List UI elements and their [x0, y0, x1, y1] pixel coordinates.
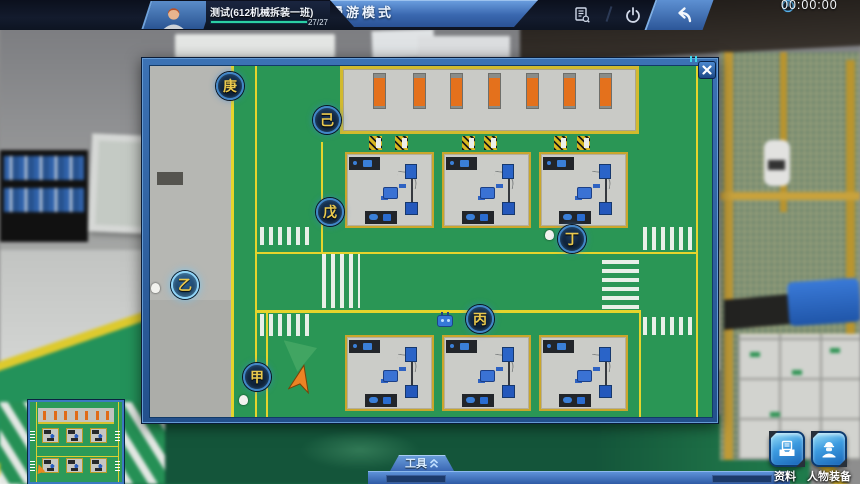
bottom-toolbar [368, 471, 790, 484]
worker-icon [819, 439, 839, 459]
power-button[interactable] [624, 6, 644, 24]
player-info-plate: 测试(612机械拆装一班) 27/27 [206, 1, 330, 29]
report-button[interactable] [573, 6, 593, 24]
map-marker-layer: 庚己戊丁乙丙甲 [150, 66, 712, 417]
map-marker-甲[interactable]: 甲 [243, 363, 271, 391]
materials-label: 资料 [774, 468, 796, 484]
app-screen: 测试(612机械拆装一班) 27/27 漫游模式 0 [0, 0, 860, 484]
documents-icon [777, 439, 797, 459]
npc-marker [545, 230, 554, 240]
power-icon [624, 6, 642, 24]
avatar-icon [162, 3, 186, 29]
back-button[interactable] [645, 0, 714, 30]
minimap-cell [42, 428, 59, 443]
factory-map-panel: 庚己戊丁乙丙甲 [141, 57, 719, 424]
progress-bar [210, 20, 308, 24]
report-icon [573, 6, 591, 24]
work-table [175, 34, 335, 58]
tools-label: 工具 [405, 455, 427, 471]
binder-row [4, 188, 84, 212]
materials-button[interactable] [769, 431, 805, 467]
map-marker-庚[interactable]: 庚 [216, 72, 244, 100]
double-chevron-up-icon [429, 458, 439, 469]
progress-fill [211, 21, 307, 23]
shelf-tag [792, 370, 802, 375]
cage-rail [720, 192, 860, 200]
map-marker-丙[interactable]: 丙 [466, 305, 494, 333]
minimap-cell [66, 458, 83, 473]
cage-post [724, 52, 733, 460]
map-marker-戊[interactable]: 戊 [316, 198, 344, 226]
panel-tick [690, 56, 692, 62]
close-button[interactable] [698, 61, 716, 79]
minimap-cell [90, 458, 107, 473]
binder-shelf [0, 150, 88, 242]
panel-tick [695, 56, 697, 62]
player-position-arrow [288, 364, 318, 398]
tools-tab[interactable]: 工具 [390, 455, 454, 471]
work-table [418, 36, 510, 58]
blue-machine [787, 278, 860, 327]
npc-marker [239, 395, 248, 405]
equipment-button[interactable] [811, 431, 847, 467]
equipment-label: 人物装备 [807, 468, 851, 484]
robot-3d [764, 140, 790, 186]
mode-banner: 漫游模式 [330, 0, 538, 27]
toolbar-inset [712, 475, 772, 483]
npc-marker [151, 283, 160, 293]
map-content: 庚己戊丁乙丙甲 [149, 65, 713, 418]
toolbar-inset [386, 475, 446, 483]
shelf-tag [750, 352, 760, 357]
timer-value: 00:00:00 [781, 0, 838, 12]
minimap-cell [66, 428, 83, 443]
binder-row [4, 156, 84, 180]
player-avatar [141, 1, 212, 29]
map-marker-乙[interactable]: 乙 [171, 271, 199, 299]
map-marker-丁[interactable]: 丁 [558, 225, 586, 253]
shelf-tag [830, 348, 840, 353]
close-icon [702, 65, 712, 75]
player-name: 测试(612机械拆装一班) [210, 4, 313, 19]
minimap-cell [90, 428, 107, 443]
robot-marker [437, 315, 453, 327]
progress-count: 27/27 [308, 18, 328, 27]
minimap[interactable] [28, 400, 124, 484]
cage-post [780, 52, 787, 212]
back-arrow-icon [672, 6, 694, 24]
shelf-tag [770, 412, 780, 417]
safety-cage [720, 52, 860, 460]
map-marker-己[interactable]: 己 [313, 106, 341, 134]
